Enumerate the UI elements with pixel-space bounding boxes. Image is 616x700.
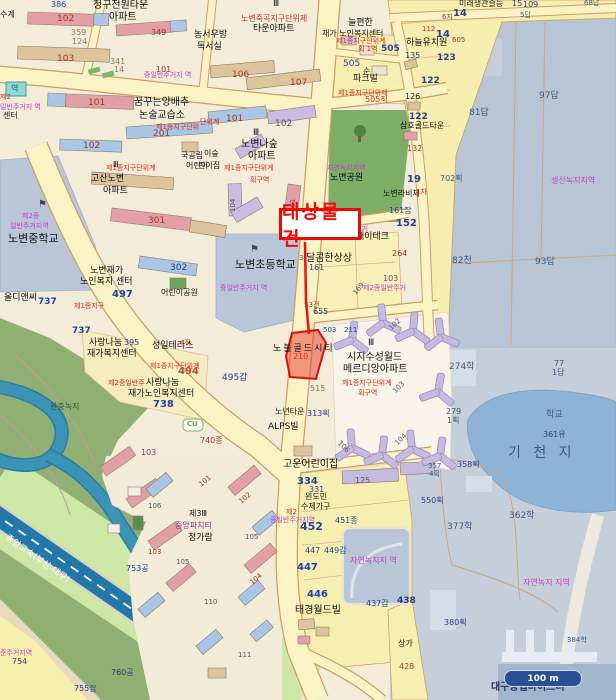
map-graphics — [0, 0, 616, 700]
tree-trunk — [358, 136, 361, 142]
target-property-label: 대상물건 — [279, 208, 361, 240]
scale-bar: 100 m — [504, 670, 582, 687]
map-viewport[interactable]: 청구전원타운아파트386수계10235912434910334114농서우방독서… — [0, 0, 616, 700]
station-badge — [6, 82, 26, 96]
tree-icon — [354, 125, 366, 137]
cu-store-badge — [183, 419, 203, 431]
